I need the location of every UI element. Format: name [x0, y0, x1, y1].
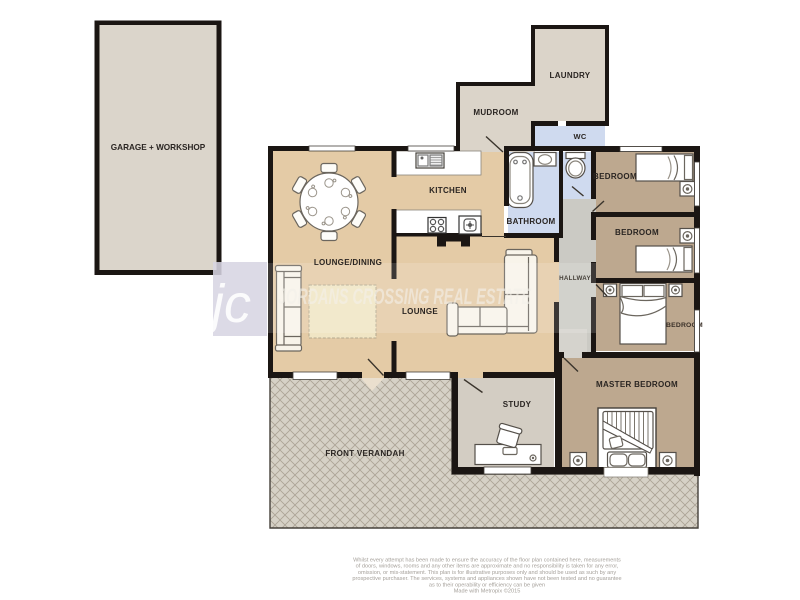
svg-text:WC: WC — [573, 132, 586, 141]
svg-text:BEDROOM: BEDROOM — [615, 228, 659, 237]
svg-text:BEDROOM: BEDROOM — [593, 172, 637, 181]
svg-text:jc: jc — [205, 274, 251, 334]
svg-text:LOUNGE: LOUNGE — [402, 307, 438, 316]
svg-text:HALLWAY: HALLWAY — [559, 275, 591, 282]
svg-text:LAUNDRY: LAUNDRY — [550, 71, 591, 80]
svg-text:GARAGE + WORKSHOP: GARAGE + WORKSHOP — [111, 143, 206, 152]
svg-text:prospective purchaser. The ser: prospective purchaser. The services, sys… — [352, 576, 621, 582]
svg-text:JORDANS CROSSING REAL ESTATE: JORDANS CROSSING REAL ESTATE — [278, 284, 532, 309]
svg-text:of doors, windows, rooms and a: of doors, windows, rooms and any other i… — [356, 564, 619, 570]
svg-text:as to their operability or eff: as to their operability or efficiency ca… — [429, 582, 545, 588]
svg-text:KITCHEN: KITCHEN — [429, 186, 467, 195]
svg-text:STUDY: STUDY — [503, 400, 532, 409]
svg-text:MASTER BEDROOM: MASTER BEDROOM — [596, 380, 678, 389]
svg-text:FRONT VERANDAH: FRONT VERANDAH — [325, 449, 404, 458]
svg-text:BATHROOM: BATHROOM — [507, 217, 556, 226]
svg-text:Made with Metropix ©2015: Made with Metropix ©2015 — [454, 588, 521, 595]
svg-text:MUDROOM: MUDROOM — [473, 108, 518, 117]
svg-text:Whilst every attempt has been: Whilst every attempt has been made to en… — [353, 558, 621, 564]
svg-text:omission, or mis-statement. Th: omission, or mis-statement. This plan is… — [358, 570, 616, 576]
svg-text:LOUNGE/DINING: LOUNGE/DINING — [314, 258, 382, 267]
